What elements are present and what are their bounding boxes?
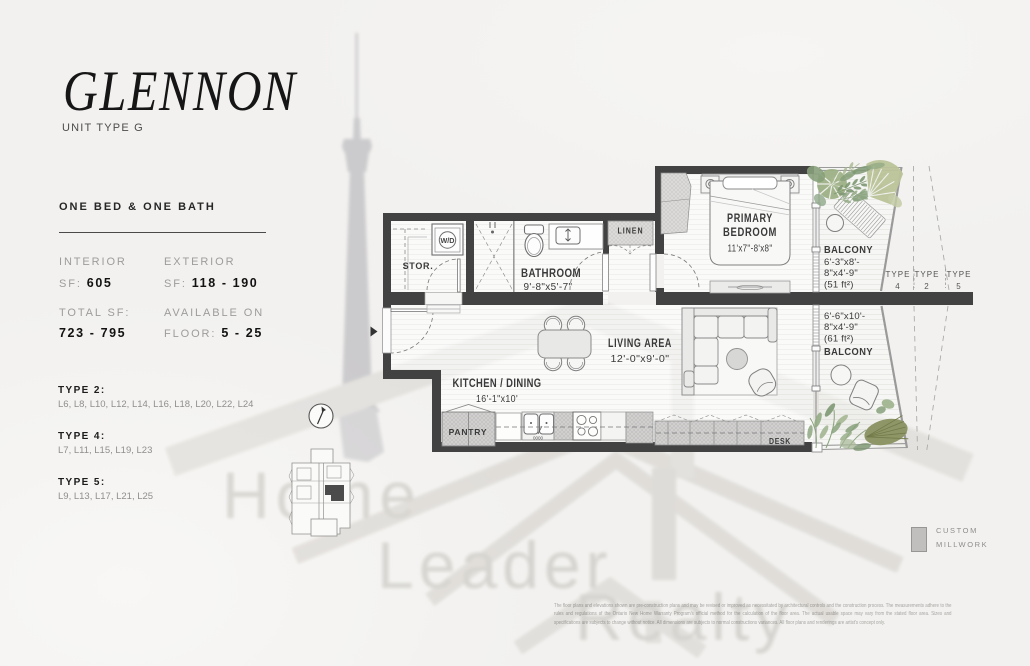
svg-text:5: 5 [956,282,961,291]
svg-text:BATHROOM: BATHROOM [521,268,581,280]
svg-text:9'-8"x5'-7": 9'-8"x5'-7" [524,282,573,293]
svg-text:0000: 0000 [533,436,544,441]
svg-text:PANTRY: PANTRY [449,427,488,437]
svg-text:STOR.: STOR. [403,261,434,271]
svg-text:11'x7"-8'x8": 11'x7"-8'x8" [728,244,773,255]
svg-text:(61 ft²): (61 ft²) [824,334,854,345]
svg-text:8"x4'-9": 8"x4'-9" [824,268,858,279]
svg-text:BALCONY: BALCONY [824,346,873,358]
svg-text:TYPE: TYPE [947,270,972,279]
svg-text:16'-1"x10': 16'-1"x10' [476,394,518,405]
svg-text:W/D: W/D [441,236,455,245]
svg-text:BALCONY: BALCONY [824,244,873,256]
svg-text:LINEN: LINEN [618,227,644,236]
svg-text:4: 4 [895,282,900,291]
svg-text:DESK: DESK [769,436,791,446]
svg-text:TYPE: TYPE [886,270,911,279]
svg-text:6'-3"x8'-: 6'-3"x8'- [824,257,860,268]
svg-text:BEDROOM: BEDROOM [723,227,777,239]
svg-text:LIVING AREA: LIVING AREA [608,338,672,350]
svg-text:PRIMARY: PRIMARY [727,213,773,225]
svg-text:6'-6"x10'-: 6'-6"x10'- [824,311,865,322]
svg-text:12'-0"x9'-0": 12'-0"x9'-0" [611,354,670,365]
svg-text:8"x4'-9": 8"x4'-9" [824,322,858,333]
svg-text:KITCHEN / DINING: KITCHEN / DINING [453,378,542,390]
svg-text:(51 ft²): (51 ft²) [824,280,854,291]
svg-text:Realty: Realty [575,580,792,654]
svg-text:2: 2 [924,282,929,291]
svg-text:TYPE: TYPE [915,270,940,279]
